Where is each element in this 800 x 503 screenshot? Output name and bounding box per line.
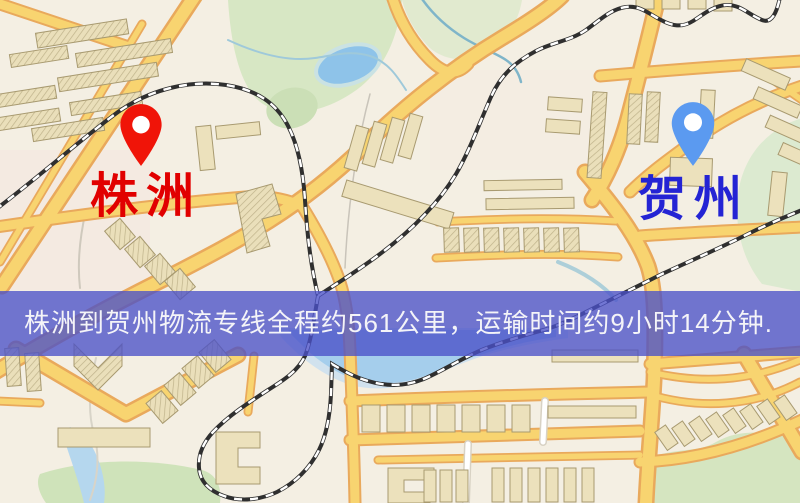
destination-marker-icon <box>667 100 719 168</box>
route-info-banner: 株洲到贺州物流专线全程约561公里，运输时间约9小时14分钟. <box>0 291 800 356</box>
origin-label: 株洲 <box>90 173 202 221</box>
map-canvas <box>0 0 800 503</box>
origin-marker-icon <box>116 102 166 168</box>
destination-label: 贺州 <box>638 176 750 224</box>
route-info-text: 株洲到贺州物流专线全程约561公里，运输时间约9小时14分钟. <box>0 291 800 356</box>
map-viewport: 株洲 贺州 株洲到贺州物流专线全程约561公里，运输时间约9小时14分钟. <box>0 0 800 503</box>
